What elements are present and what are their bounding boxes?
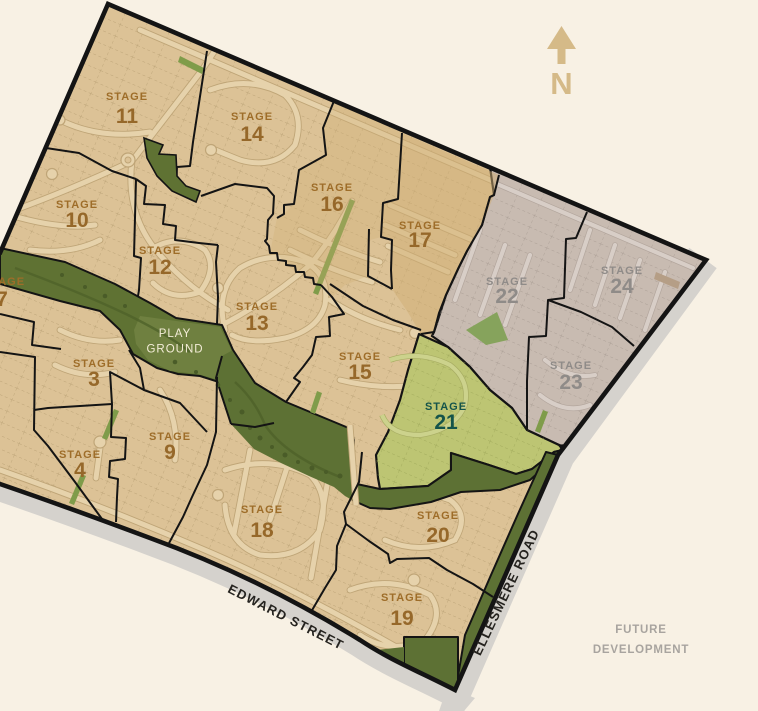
svg-text:11: 11 <box>116 105 139 128</box>
svg-text:23: 23 <box>559 371 582 394</box>
svg-text:FUTURE: FUTURE <box>615 624 666 636</box>
svg-text:STAGE: STAGE <box>241 504 283 516</box>
svg-text:STAGE: STAGE <box>417 510 459 522</box>
svg-text:19: 19 <box>390 607 413 630</box>
svg-text:16: 16 <box>320 193 343 216</box>
svg-text:14: 14 <box>240 123 264 146</box>
svg-text:STAGE: STAGE <box>106 91 148 103</box>
svg-text:22: 22 <box>495 285 518 308</box>
svg-text:15: 15 <box>348 361 372 384</box>
svg-text:STAGE: STAGE <box>381 592 423 604</box>
svg-text:10: 10 <box>65 209 88 232</box>
svg-text:3: 3 <box>88 368 100 391</box>
svg-text:17: 17 <box>408 229 431 252</box>
svg-text:N: N <box>550 66 572 101</box>
svg-text:9: 9 <box>164 441 176 464</box>
svg-text:7: 7 <box>0 288 8 311</box>
svg-text:DEVELOPMENT: DEVELOPMENT <box>593 644 689 656</box>
svg-text:21: 21 <box>434 411 458 434</box>
svg-text:12: 12 <box>148 256 171 279</box>
svg-text:13: 13 <box>245 312 268 335</box>
svg-text:GROUND: GROUND <box>146 344 203 356</box>
svg-text:STAGE: STAGE <box>0 276 25 288</box>
svg-text:STAGE: STAGE <box>231 111 273 123</box>
svg-text:4: 4 <box>74 459 86 482</box>
svg-text:20: 20 <box>426 524 449 547</box>
svg-text:18: 18 <box>250 519 274 542</box>
svg-text:PLAY: PLAY <box>159 328 192 340</box>
svg-text:24: 24 <box>610 275 634 298</box>
